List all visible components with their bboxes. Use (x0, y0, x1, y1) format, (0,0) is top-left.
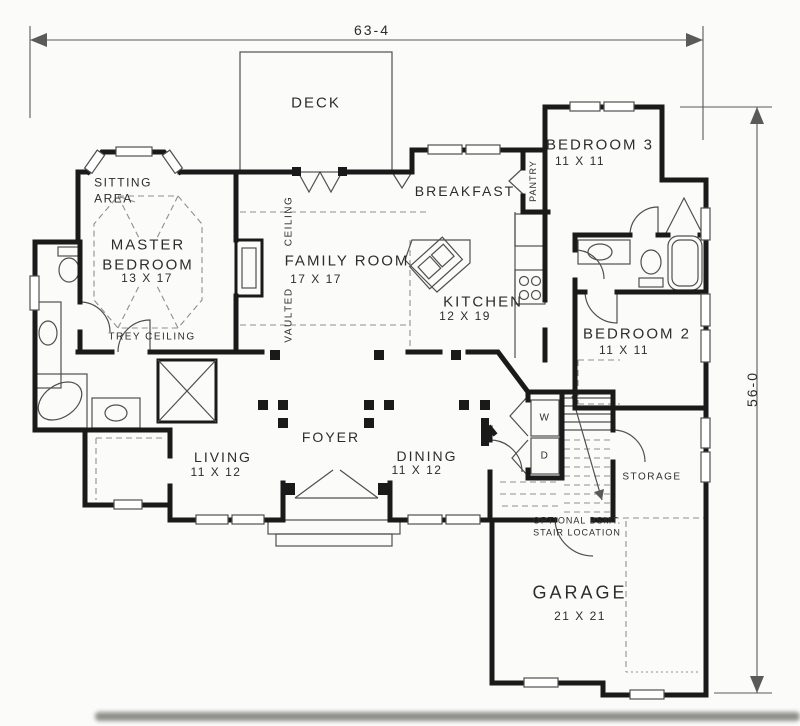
width-dimension-label: 63-4 (354, 21, 390, 39)
bedroom2-label: BEDROOM 2 (583, 324, 691, 344)
garage-label: GARAGE (532, 581, 627, 604)
kitchen-fixtures (405, 212, 545, 358)
sitting-area-label: SITTING AREA (94, 175, 152, 206)
pantry-label: PANTRY (528, 160, 540, 202)
foyer-label: FOYER (302, 428, 360, 446)
washer-label: W (540, 412, 551, 425)
kitchen-size: 12 X 19 (439, 309, 491, 325)
bedroom2-size: 11 X 11 (599, 343, 649, 359)
garage-size: 21 X 21 (554, 609, 606, 625)
stair-note: OPTIONAL BSMT. STAIR LOCATION (533, 515, 621, 538)
breakfast-label: BREAKFAST (415, 182, 515, 200)
ceiling-note: CEILING (283, 196, 296, 247)
storage-label: STORAGE (622, 471, 681, 484)
deck-label: DECK (291, 93, 341, 113)
scan-artifact (95, 712, 800, 721)
floor-plan-page: DECK SITTING AREA MASTER BEDROOM 13 X 17… (0, 0, 800, 726)
living-label: LIVING (194, 448, 252, 466)
master-bedroom-size: 13 X 17 (121, 271, 173, 287)
dryer-label: D (541, 450, 550, 463)
living-size: 11 X 12 (191, 465, 242, 481)
bedroom3-size: 11 X 11 (555, 154, 605, 170)
master-bedroom-label: MASTER BEDROOM (102, 236, 194, 275)
bedroom3-label: BEDROOM 3 (546, 135, 654, 155)
family-room-label: FAMILY ROOM (285, 251, 410, 271)
vaulted-note: VAULTED (283, 287, 296, 342)
floor-plan-drawing (0, 0, 800, 726)
height-dimension-label: 56-0 (743, 371, 761, 407)
dining-size: 11 X 12 (392, 463, 443, 479)
family-room-size: 17 X 17 (290, 272, 342, 288)
trey-ceiling-note: TREY CEILING (108, 331, 195, 344)
